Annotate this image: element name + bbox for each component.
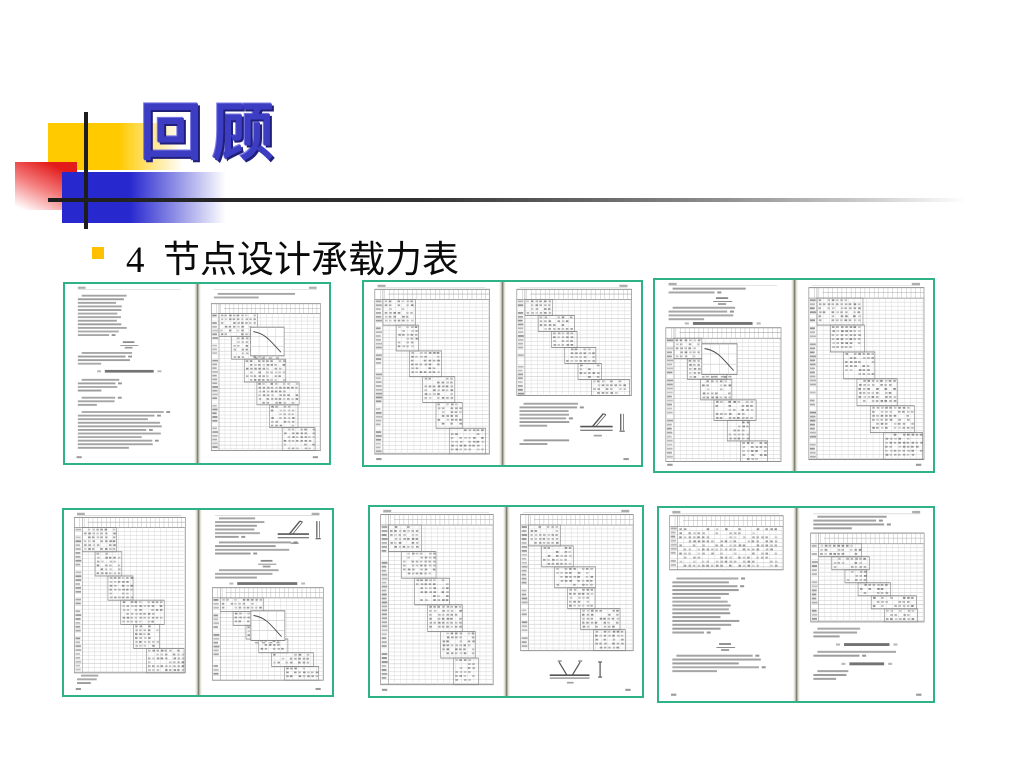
page-thumbnail-6	[657, 506, 935, 703]
scanned-page-right	[201, 284, 330, 463]
book-gutter	[793, 508, 800, 701]
scanned-page-right	[202, 510, 333, 695]
scanned-page-left	[659, 508, 793, 701]
page-thumbnail-1	[63, 282, 331, 465]
page-thumbnail-4	[62, 508, 334, 697]
book-gutter	[195, 510, 202, 695]
slide-canvas: 回顾 4 节点设计承载力表	[0, 0, 1024, 768]
bullet-text: 4 节点设计承载力表	[126, 229, 459, 283]
scanned-page-left	[370, 507, 503, 696]
bullet-marker-icon	[92, 247, 104, 259]
page-thumbnail-3	[653, 278, 935, 473]
scanned-page-right	[506, 282, 641, 465]
book-gutter	[194, 284, 201, 463]
book-gutter	[503, 507, 510, 696]
scanned-page-left	[364, 282, 499, 465]
page-thumbnail-5	[368, 505, 644, 698]
scanned-page-left	[64, 510, 195, 695]
deco-vertical-line	[84, 112, 88, 229]
book-gutter	[499, 282, 506, 465]
page-thumbnail-2	[362, 280, 643, 467]
slide-title: 回顾	[140, 100, 284, 168]
scanned-page-left	[65, 284, 194, 463]
book-gutter	[791, 280, 798, 471]
scanned-page-right	[798, 280, 934, 471]
scanned-page-right	[510, 507, 643, 696]
scanned-page-left	[655, 280, 791, 471]
scanned-page-right	[800, 508, 934, 701]
title-underline	[48, 198, 985, 202]
